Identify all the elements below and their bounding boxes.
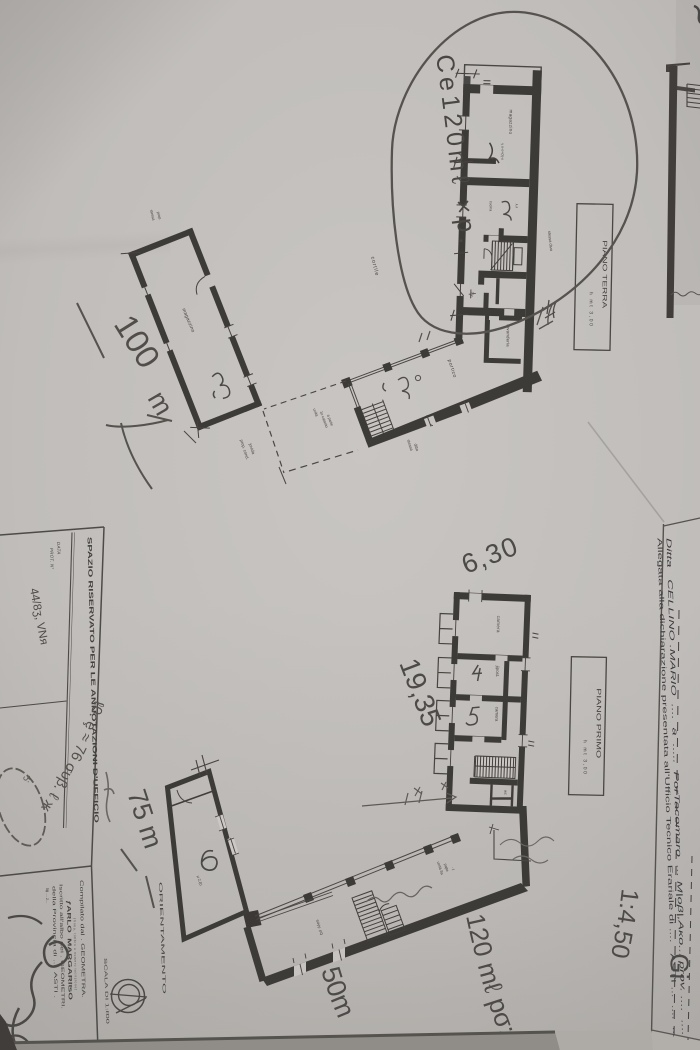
svg-text:cucina: cucina <box>489 201 493 211</box>
svg-text:lavanderia: lavanderia <box>506 324 511 347</box>
svg-text:ʒ·: ʒ· <box>23 775 34 784</box>
svg-text:ɉipοst.: ɉipοst. <box>495 665 500 678</box>
svg-text:PIANO PRIMO: PIANO PRIMO <box>595 688 602 758</box>
svg-text:camera: camera <box>496 616 501 633</box>
svg-text:γ ο-ο=ζή-ο: γ ο-ο=ζή-ο <box>500 143 504 160</box>
svg-text:h mt 3,00: h mt 3,00 <box>582 740 588 774</box>
svg-text:λ.λ: λ.λ <box>515 204 519 209</box>
svg-text:PIANO TERRA: PIANO TERRA <box>601 240 608 309</box>
svg-text:wc: wc <box>503 790 507 795</box>
svg-text:magazzino: magazzino <box>508 109 513 134</box>
svg-text:Gi: Gi <box>664 953 695 980</box>
svg-text:h mt 3,00: h mt 3,00 <box>588 292 594 326</box>
svg-text:camera: camera <box>494 707 499 722</box>
svg-text:PROT. N°: PROT. N° <box>49 548 55 570</box>
svg-text:DATA: DATA <box>56 542 61 555</box>
svg-text:liɸ ... ᴢ...: liɸ ... ᴢ... <box>45 888 50 904</box>
